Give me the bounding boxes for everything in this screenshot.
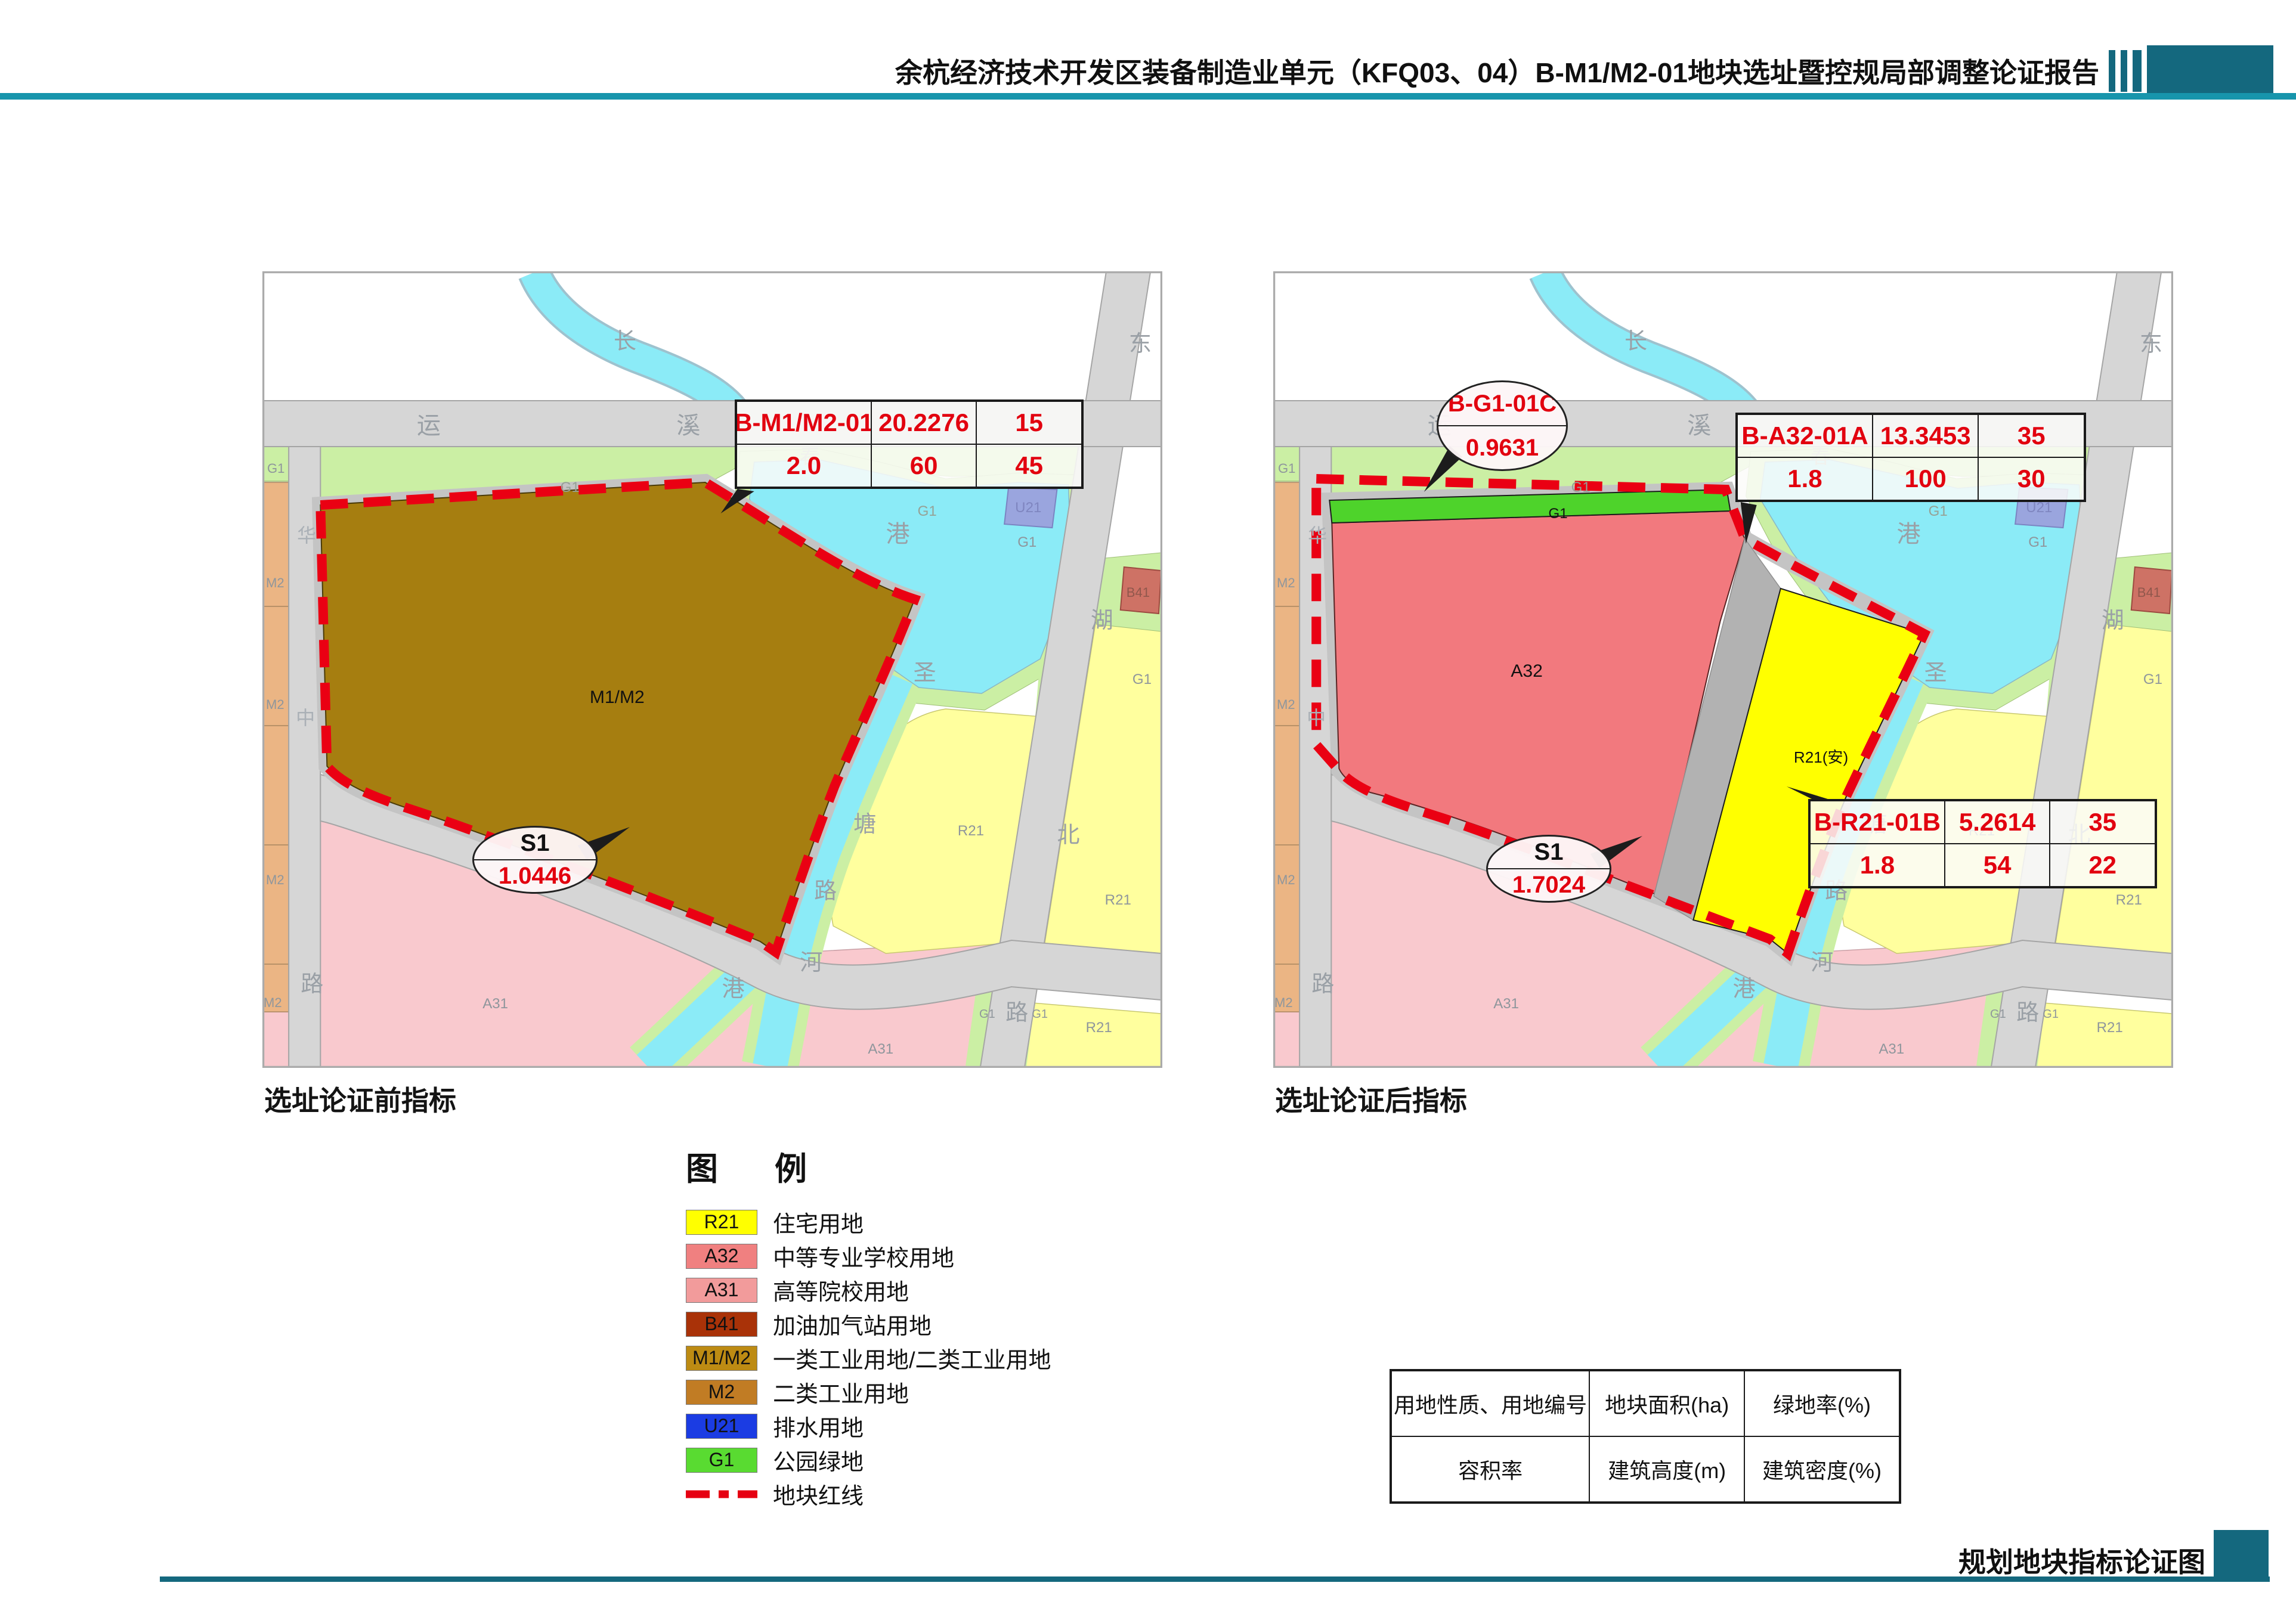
- map-label: M2: [266, 697, 284, 712]
- map-label: 圣: [1924, 661, 1947, 686]
- legend-item-a32: A32 中等专业学校用地: [686, 1239, 1051, 1273]
- map-label: 运: [417, 413, 441, 439]
- indicator-table-r21: B-R21-01B 5.2614 35 1.8 54 22: [1808, 799, 2157, 888]
- map-label: G1: [1132, 671, 1152, 687]
- indicator-table-a32: B-A32-01A 13.3453 35 1.8 100 30: [1735, 413, 2086, 502]
- map-label: 东: [2140, 332, 2162, 357]
- legend-item-redline: 地块红线: [686, 1477, 1051, 1511]
- caption-before: 选址论证前指标: [264, 1079, 456, 1119]
- map-label: M2: [264, 995, 282, 1010]
- legend-label: 二类工业用地: [773, 1376, 909, 1408]
- map-canvas-before: 长东运溪春港湖圣塘北河港路路路华中G1G1G1G1G1G1G1M2M2M2M2U…: [264, 272, 1161, 1067]
- map-label: 河: [800, 950, 822, 975]
- map-label: R21: [958, 823, 984, 839]
- plot-area-cell: 20.2276: [871, 401, 977, 444]
- legend-label: 一类工业用地/二类工业用地: [773, 1342, 1051, 1374]
- key-cell: 地块面积(ha): [1589, 1371, 1744, 1436]
- far-cell: 1.8: [1810, 844, 1945, 887]
- map-label: A31: [482, 996, 508, 1012]
- map-label: 路: [1311, 972, 1334, 997]
- map-label: 港: [722, 977, 745, 1002]
- map-canvas-after: 长东运溪春港湖圣塘北河港路路路华中G1G1G1G1G1G1G1M2M2M2M2U…: [1274, 272, 2172, 1067]
- map-label: U21: [2026, 500, 2052, 516]
- indicator-key-table: 用地性质、用地编号 地块面积(ha) 绿地率(%) 容积率 建筑高度(m) 建筑…: [1390, 1369, 1901, 1504]
- legend-swatch-m2: M2: [686, 1380, 757, 1405]
- legend-label: 加油加气站用地: [773, 1308, 932, 1340]
- map-label: M2: [1277, 697, 1295, 712]
- footer-divider-line: [160, 1576, 2270, 1582]
- legend-swatch-m1m2: M1/M2: [686, 1346, 757, 1371]
- far-cell: 1.8: [1737, 457, 1873, 500]
- report-page: 余杭经济技术开发区装备制造业单元（KFQ03、04）B-M1/M2-01地块选址…: [0, 0, 2296, 1623]
- map-label: 湖: [1091, 608, 1113, 633]
- legend: 图 例 R21 住宅用地 A32 中等专业学校用地 A31 高等院校用地 B41…: [686, 1142, 1051, 1511]
- map-label: M2: [1277, 872, 1295, 887]
- map-label: G1: [1278, 461, 1295, 476]
- footer-title: 规划地块指标论证图: [1958, 1541, 2205, 1580]
- green-rate-cell: 35: [2050, 801, 2155, 844]
- legend-swatch-u21: U21: [686, 1414, 757, 1439]
- redline-sample-icon: [686, 1482, 757, 1507]
- header-accent-bar-2: [2121, 50, 2127, 92]
- caption-after: 选址论证后指标: [1275, 1079, 1467, 1119]
- legend-item-g1: G1 公园绿地: [686, 1443, 1051, 1477]
- map-label: 路: [1005, 1001, 1028, 1026]
- density-cell: 30: [1978, 457, 2084, 500]
- legend-swatch-r21: R21: [686, 1210, 757, 1235]
- legend-item-b41: B41 加油加气站用地: [686, 1307, 1051, 1341]
- map-label: G1: [1571, 479, 1591, 495]
- header-accent-block: [2147, 45, 2273, 97]
- map-panel-before: 长东运溪春港湖圣塘北河港路路路华中G1G1G1G1G1G1G1M2M2M2M2U…: [262, 271, 1162, 1068]
- map-label: R21: [2116, 892, 2142, 908]
- map-label: 河: [1811, 950, 1833, 975]
- plot-id-cell: B-M1/M2-01: [737, 401, 871, 444]
- legend-label: 中等专业学校用地: [773, 1240, 954, 1272]
- legend-label: 住宅用地: [773, 1206, 864, 1238]
- plot-label-a32: A32: [1511, 661, 1543, 681]
- map-label: 长: [1624, 329, 1647, 354]
- map-label: B41: [2137, 585, 2161, 600]
- indicator-table-before: B-M1/M2-01 20.2276 15 2.0 60 45: [735, 399, 1084, 489]
- legend-label: 排水用地: [773, 1410, 864, 1442]
- map-label: U21: [1015, 500, 1041, 516]
- map-label: G1: [2028, 534, 2047, 550]
- map-label: M2: [266, 575, 284, 590]
- plot-id-cell: B-A32-01A: [1737, 414, 1873, 457]
- legend-label: 地块红线: [773, 1478, 864, 1510]
- map-label: 港: [1733, 977, 1756, 1002]
- header-accent-bar-3: [2133, 50, 2142, 92]
- map-label: R21: [1105, 892, 1131, 908]
- s1-callout-after: S1 1.7024: [1486, 835, 1611, 903]
- map-label: G1: [561, 479, 580, 495]
- map-label: G1: [1929, 503, 1948, 519]
- height-cell: 60: [871, 444, 977, 487]
- key-cell: 绿地率(%): [1744, 1371, 1899, 1436]
- map-label: 湖: [2102, 608, 2124, 633]
- map-label: R21: [1086, 1020, 1112, 1036]
- map-label: 塘: [853, 812, 876, 837]
- g1-callout: B-G1-01C 0.9631: [1437, 380, 1568, 471]
- map-label: 长: [614, 329, 636, 354]
- header-divider-line: [0, 93, 2296, 100]
- map-label: 圣: [914, 661, 936, 686]
- map-label: 港: [886, 521, 909, 547]
- legend-title: 图 例: [686, 1142, 1051, 1190]
- legend-swatch-b41: B41: [686, 1312, 757, 1337]
- plot-area-cell: 13.3453: [1873, 414, 1979, 457]
- key-cell: 建筑高度(m): [1589, 1436, 1744, 1502]
- legend-swatch-a31: A31: [686, 1278, 757, 1303]
- legend-label: 高等院校用地: [773, 1274, 909, 1306]
- map-label: G1: [1032, 1008, 1048, 1021]
- legend-label: 公园绿地: [773, 1444, 864, 1476]
- legend-item-u21: U21 排水用地: [686, 1409, 1051, 1443]
- map-label: A31: [1493, 996, 1519, 1012]
- map-label: 溪: [1687, 413, 1711, 439]
- far-cell: 2.0: [737, 444, 871, 487]
- map-label: 路: [814, 879, 837, 904]
- map-label: G1: [979, 1008, 995, 1021]
- plot-label-r21: R21(安): [1794, 748, 1848, 766]
- map-label: 华: [297, 525, 316, 546]
- page-title: 余杭经济技术开发区装备制造业单元（KFQ03、04）B-M1/M2-01地块选址…: [895, 51, 2099, 91]
- key-cell: 用地性质、用地编号: [1391, 1371, 1589, 1436]
- green-rate-cell: 35: [1978, 414, 2084, 457]
- map-label: G1: [1990, 1008, 2006, 1021]
- key-cell: 容积率: [1391, 1436, 1589, 1502]
- map-label: G1: [2043, 1008, 2059, 1021]
- map-label: B41: [1127, 585, 1150, 600]
- plot-id-cell: B-R21-01B: [1810, 801, 1945, 844]
- map-label: 中: [1307, 707, 1326, 729]
- map-label: 中: [296, 707, 315, 729]
- key-cell: 建筑密度(%): [1744, 1436, 1899, 1502]
- legend-swatch-a32: A32: [686, 1244, 757, 1269]
- map-label: G1: [267, 461, 284, 476]
- map-label: 港: [1896, 521, 1920, 547]
- legend-item-m2: M2 二类工业用地: [686, 1375, 1051, 1409]
- height-cell: 100: [1873, 457, 1979, 500]
- plot-label-m1m2: M1/M2: [590, 687, 645, 707]
- map-label: R21: [2097, 1020, 2123, 1036]
- legend-item-a31: A31 高等院校用地: [686, 1273, 1051, 1307]
- density-cell: 45: [976, 444, 1082, 487]
- map-label: 北: [1057, 823, 1079, 848]
- map-label: A31: [1879, 1041, 1904, 1057]
- map-label: A31: [868, 1041, 893, 1057]
- footer-accent-block: [2214, 1530, 2269, 1576]
- map-label: M2: [1274, 995, 1293, 1010]
- map-label: G1: [918, 503, 937, 519]
- height-cell: 54: [1945, 844, 2050, 887]
- plot-area-cell: 5.2614: [1945, 801, 2050, 844]
- s1-callout-before: S1 1.0446: [472, 826, 598, 894]
- map-panel-after: 长东运溪春港湖圣塘北河港路路路华中G1G1G1G1G1G1G1M2M2M2M2U…: [1273, 271, 2173, 1068]
- header-accent-bar-1: [2109, 50, 2115, 92]
- density-cell: 22: [2050, 844, 2155, 887]
- map-label: 华: [1308, 525, 1327, 546]
- green-rate-cell: 15: [976, 401, 1082, 444]
- map-label: M2: [1277, 575, 1295, 590]
- plot-label-g1: G1: [1549, 506, 1568, 522]
- legend-item-m1m2: M1/M2 一类工业用地/二类工业用地: [686, 1341, 1051, 1375]
- map-label: G1: [2143, 671, 2162, 687]
- map-label: 东: [1129, 332, 1152, 357]
- legend-item-r21: R21 住宅用地: [686, 1205, 1051, 1239]
- map-label: 路: [301, 972, 323, 997]
- map-label: 路: [2016, 1001, 2039, 1026]
- map-label: G1: [1017, 534, 1036, 550]
- map-label: 溪: [676, 413, 700, 439]
- map-label: M2: [266, 872, 284, 887]
- legend-swatch-g1: G1: [686, 1448, 757, 1473]
